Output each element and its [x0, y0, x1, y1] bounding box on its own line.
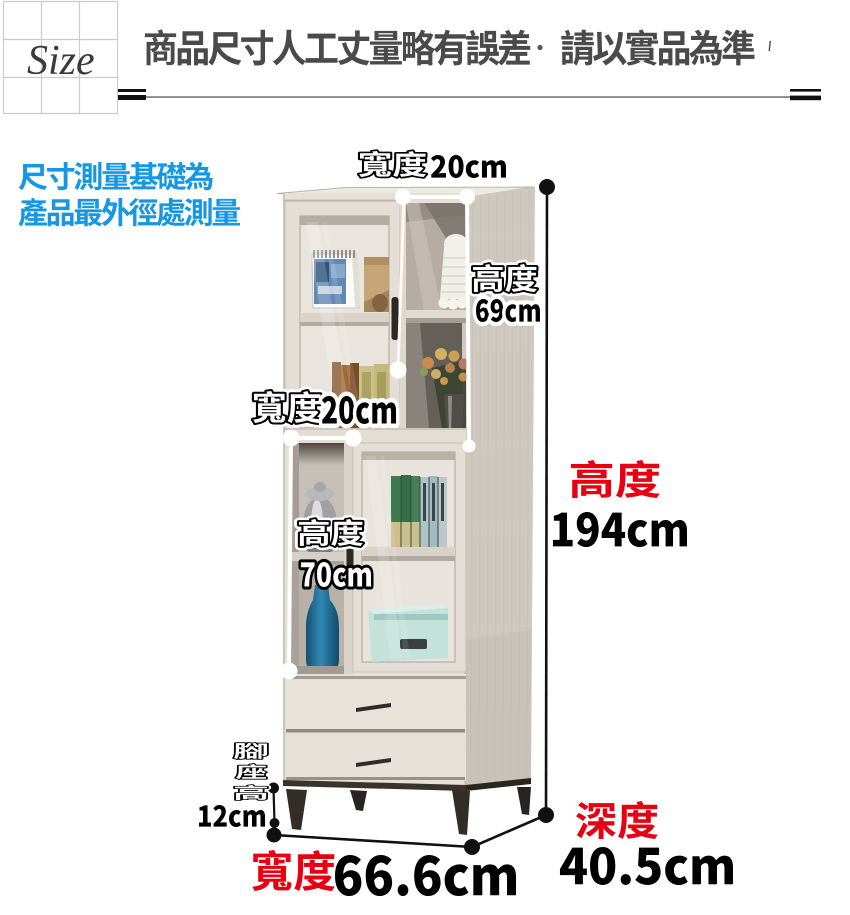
svg-text:Size: Size — [27, 38, 95, 84]
